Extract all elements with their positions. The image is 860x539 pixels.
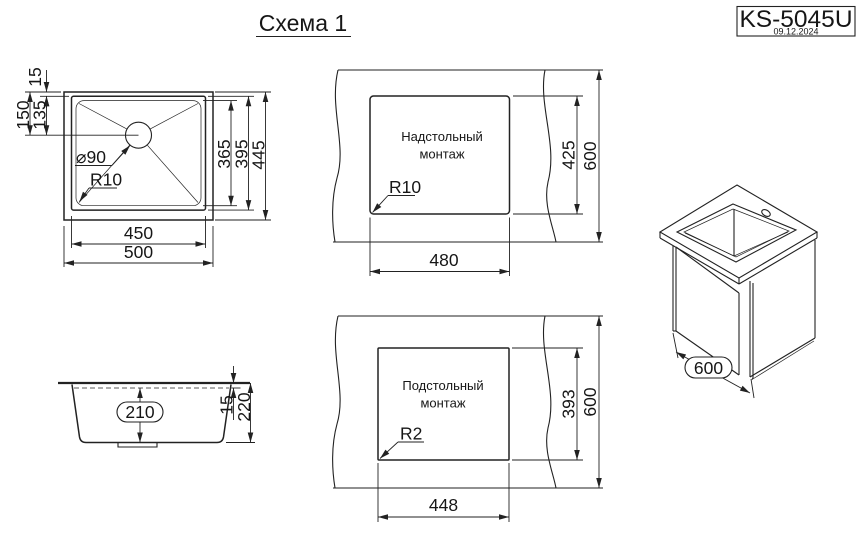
iso-view: 600 <box>660 185 817 398</box>
dim-undermount-cutout-height: 393 <box>559 389 579 418</box>
undermount-radius-label: R2 <box>400 424 422 444</box>
dim-depth-overall: 220 <box>234 392 254 421</box>
dim-width-overall: 500 <box>124 242 153 262</box>
title-block: KS-5045U 09.12.2024 <box>737 6 855 37</box>
corner-radius-label: R10 <box>90 170 122 190</box>
side-view: 210 15 220 <box>58 366 255 447</box>
dim-offset-top: 15 <box>25 67 45 86</box>
iso-depth-dim: 600 <box>673 333 754 398</box>
overmount-label-line2: монтаж <box>419 147 464 162</box>
dim-height-overall: 445 <box>249 140 269 169</box>
schematic-canvas: Схема 1 KS-5045U 09.12.2024 15 150 135 <box>0 0 860 539</box>
counter-break-left <box>333 316 341 488</box>
dim-overmount-cutout-height: 425 <box>559 140 579 169</box>
undermount-label-line1: Подстольный <box>402 378 483 393</box>
dim-iso-depth: 600 <box>694 358 723 378</box>
schematic-page: Схема 1 KS-5045U 09.12.2024 15 150 135 <box>0 0 860 539</box>
overmount-label-line1: Надстольный <box>401 129 483 144</box>
dim-undermount-cutout-width: 448 <box>429 495 458 515</box>
top-view: 15 150 135 365 395 445 450 500 ⌀90 R10 <box>13 67 271 267</box>
counter-break-left <box>333 70 341 242</box>
dim-center-from-bowl-top: 135 <box>30 100 50 129</box>
iso-sink-rim-inner <box>684 209 789 257</box>
counter-break-right <box>543 316 556 488</box>
dim-depth-inner: 210 <box>125 402 154 422</box>
dim-overmount-cutout-width: 480 <box>429 250 458 270</box>
dim-undermount-counter-depth: 600 <box>580 387 600 416</box>
iso-right-panel <box>750 240 815 380</box>
dim-overmount-counter-depth: 600 <box>580 141 600 170</box>
undermount-view: Подстольный монтаж 393 600 448 R2 <box>333 316 603 522</box>
iso-sink-rim-outer <box>677 204 796 262</box>
dim-width-bowl: 450 <box>124 223 153 243</box>
drain-diameter-label: ⌀90 <box>76 147 106 167</box>
page-title: Схема 1 <box>259 10 347 36</box>
overmount-radius-label: R10 <box>389 177 421 197</box>
drawing-date: 09.12.2024 <box>773 27 818 37</box>
overmount-view: Надстольный монтаж 425 600 480 R10 <box>333 70 603 276</box>
undermount-label-line2: монтаж <box>420 396 465 411</box>
